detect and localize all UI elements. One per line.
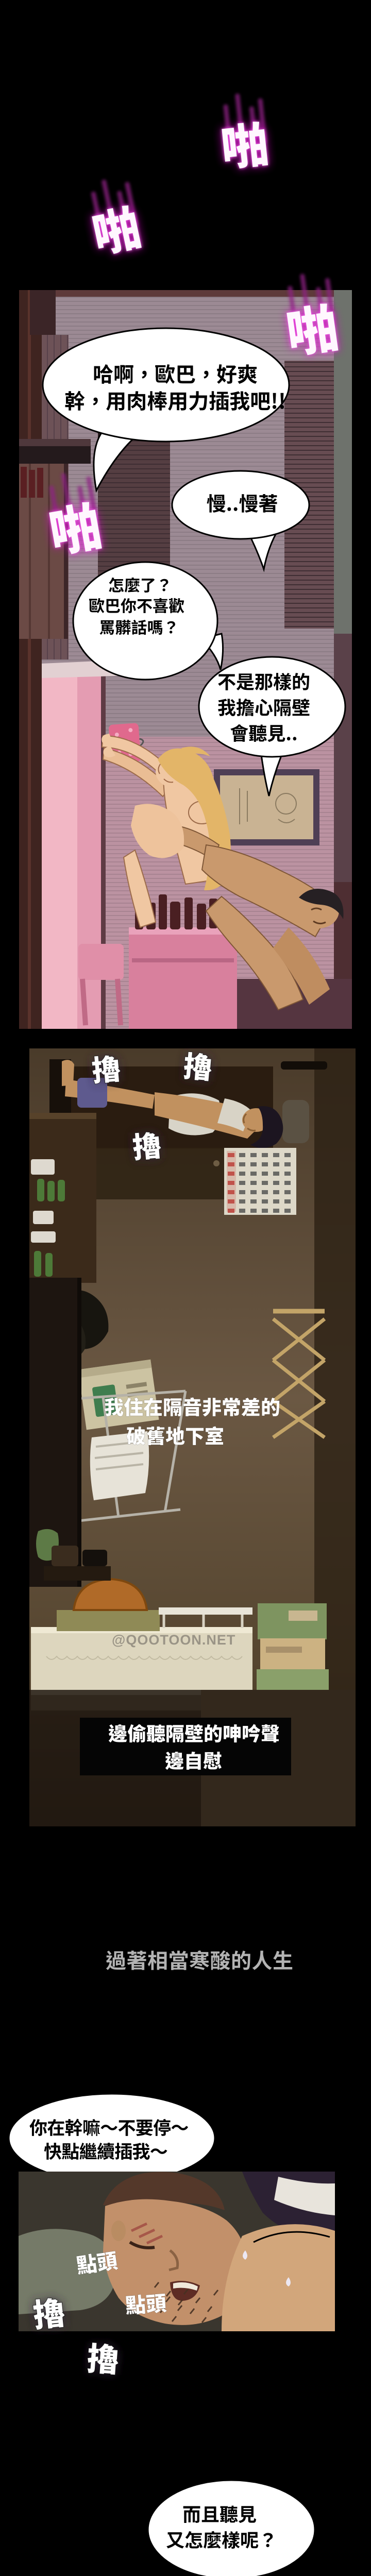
svg-text:@QOOTOON.NET: @QOOTOON.NET: [112, 1632, 235, 1648]
